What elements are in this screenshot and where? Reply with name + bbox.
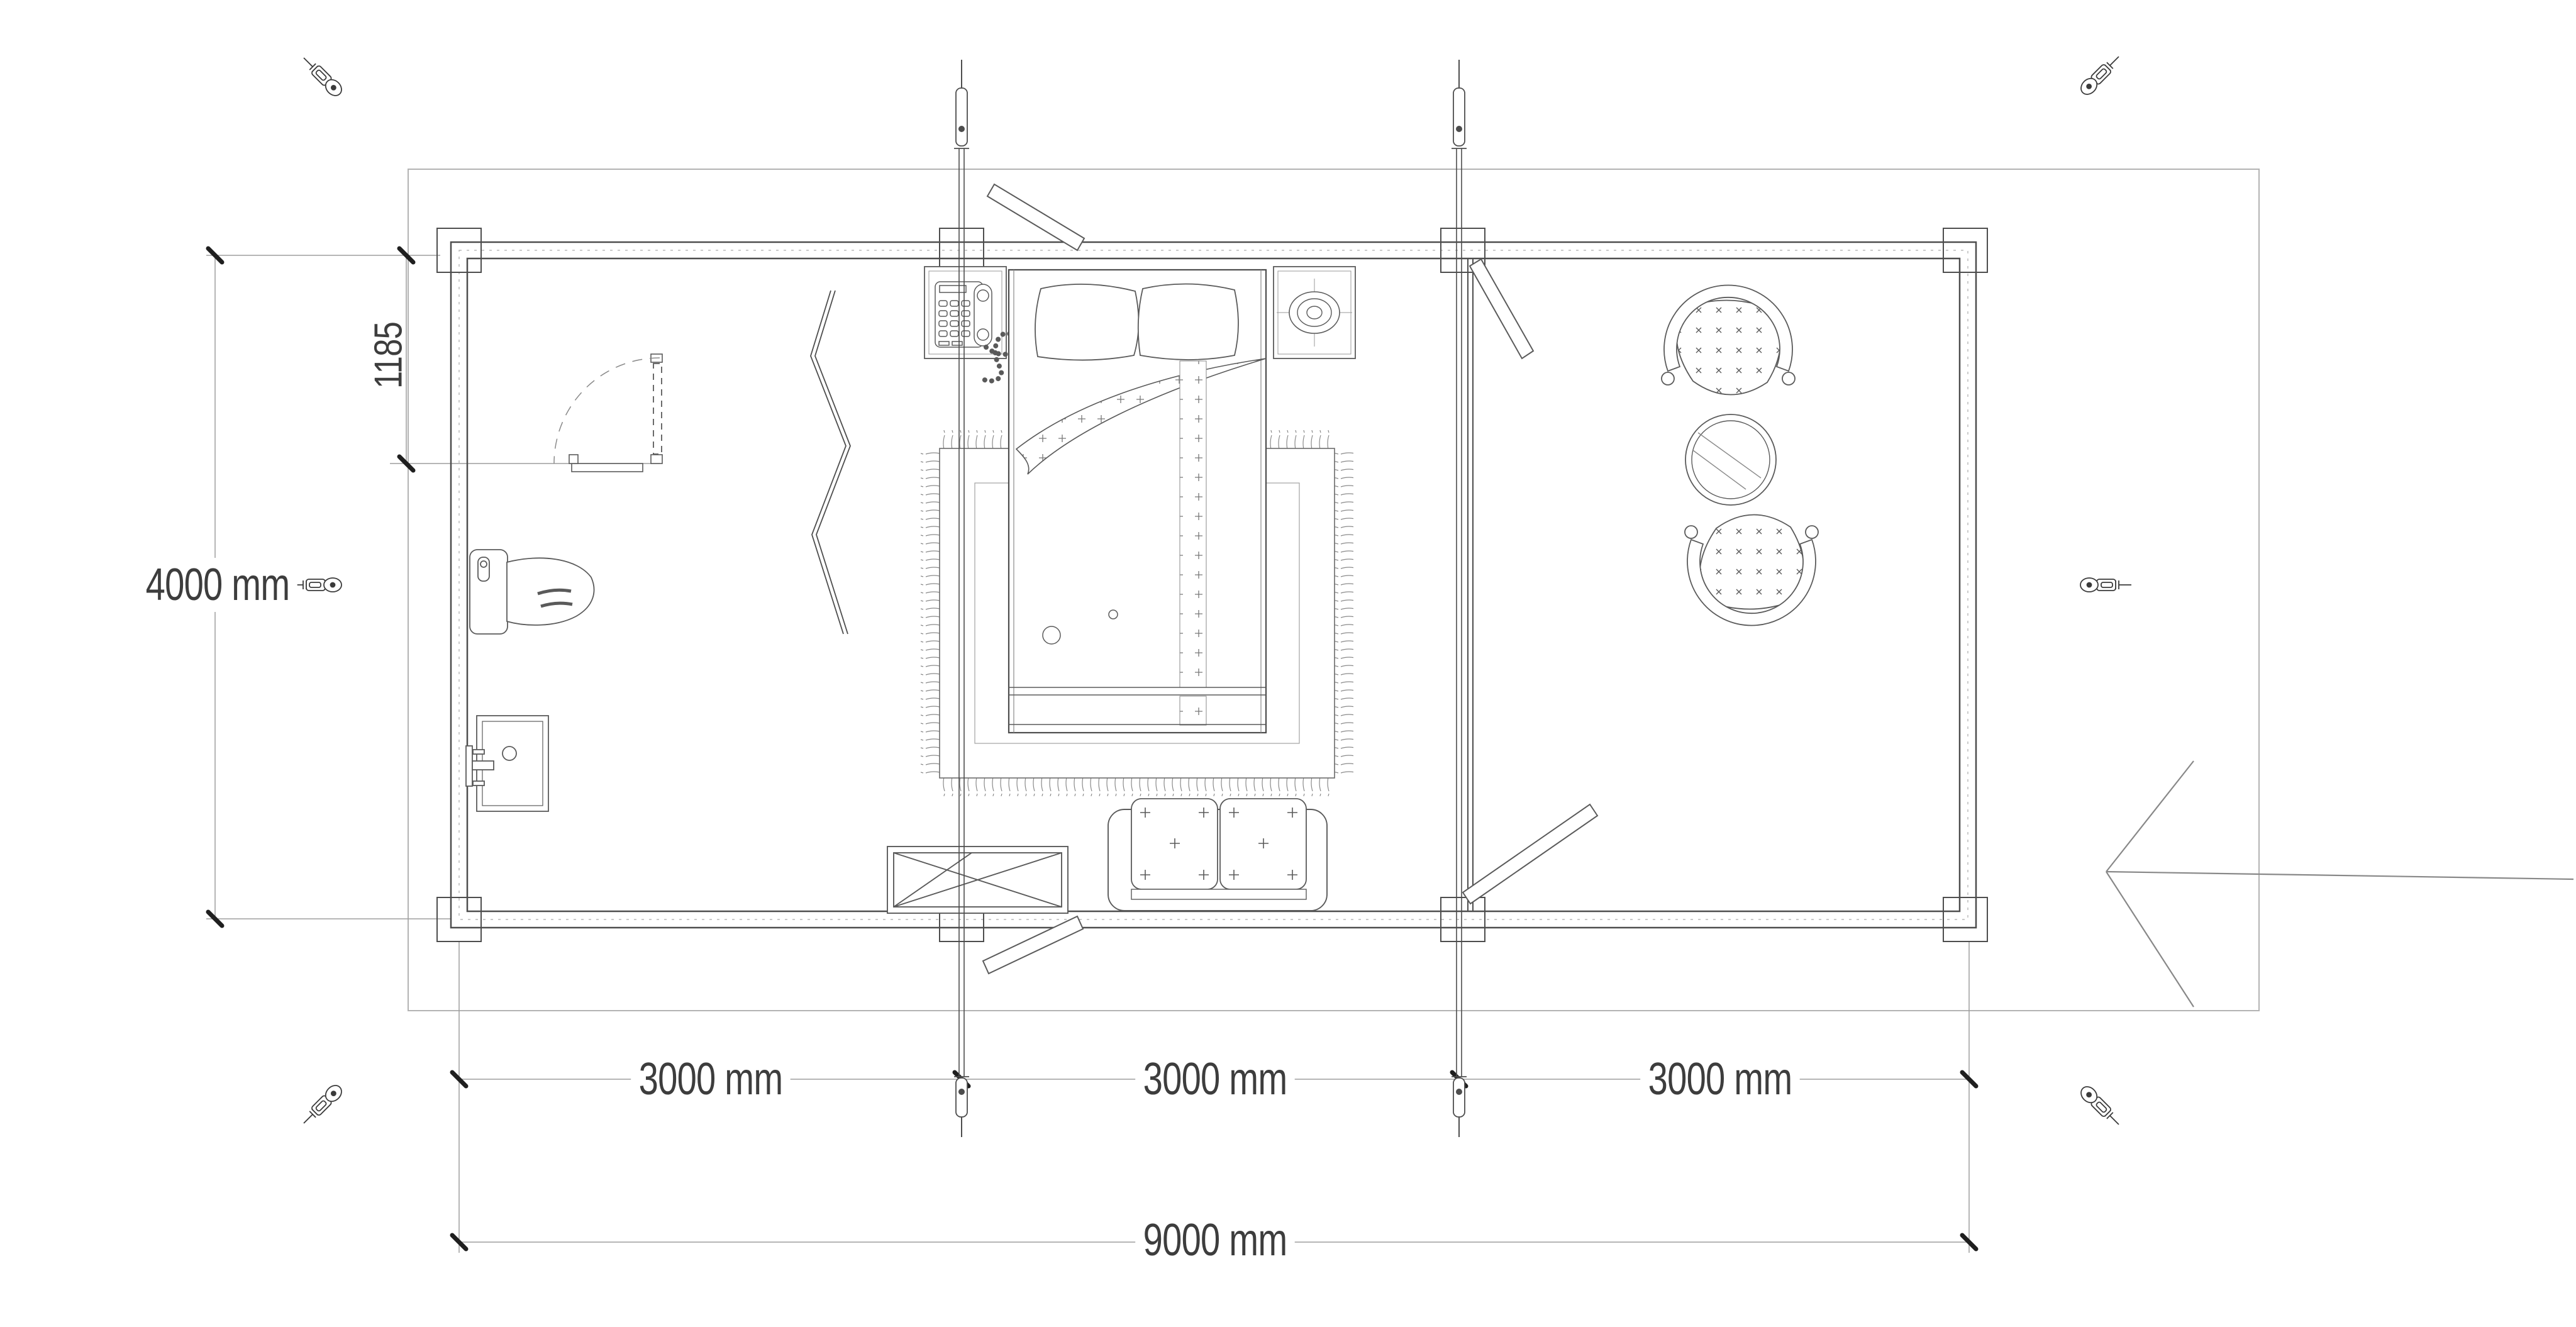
tie-rod-icon — [1452, 60, 1467, 1137]
post-bottom-left — [437, 897, 481, 941]
post-top-right — [1943, 228, 1987, 272]
door-leaf-icon — [983, 916, 1083, 974]
door-leaf-icon — [1463, 804, 1597, 904]
lamp-nightstand-icon — [1274, 267, 1355, 358]
turnbuckle-icon — [2078, 52, 2124, 97]
pillow-icon — [1138, 284, 1238, 360]
turnbuckle-icon — [291, 578, 341, 592]
folding-screen-icon — [811, 291, 850, 634]
dimension-label-bay-2: 3000 mm — [1135, 1052, 1295, 1106]
bathroom-door — [554, 354, 662, 472]
drain-icon — [502, 747, 516, 760]
seat-cushion-icon — [1699, 514, 1804, 609]
blanket-band-icon — [1180, 361, 1206, 687]
dimension-label-door-offset: 1185 — [365, 318, 413, 392]
door-leaf-icon — [1470, 259, 1533, 358]
floor-plan-canvas: 4000 mm 1185 3000 mm 3000 mm 3000 mm 900… — [0, 0, 2576, 1327]
toilet-icon — [470, 550, 594, 634]
turnbuckle-icon — [299, 1082, 345, 1128]
entrance-arrow-icon — [2106, 761, 2573, 1007]
armchair-icon — [1662, 286, 1795, 395]
round-glass-table-icon — [1685, 414, 1776, 505]
seat-cushion-icon — [1676, 300, 1780, 394]
turnbuckle-icon — [2078, 1084, 2124, 1130]
sink-icon — [466, 716, 548, 811]
dimension-label-bay-1: 3000 mm — [631, 1052, 791, 1106]
crossed-table-icon — [887, 847, 1068, 913]
door-swing-icon — [554, 358, 660, 464]
double-bed-icon — [1009, 270, 1266, 733]
dimension-label-overall-width: 9000 mm — [1135, 1213, 1295, 1267]
door-leaf-icon — [987, 184, 1084, 250]
post-bottom-mid2 — [1441, 897, 1485, 941]
post-top-mid1 — [940, 228, 984, 272]
dimension-label-depth: 4000 mm — [138, 558, 297, 612]
post-bottom-right — [1943, 897, 1987, 941]
turnbuckle-icon — [2080, 578, 2131, 592]
floor-plan-drawing — [0, 0, 2576, 1327]
dimension-label-bay-3: 3000 mm — [1640, 1052, 1800, 1106]
door-leaf-icon — [653, 364, 662, 454]
pillow-icon — [1035, 284, 1139, 360]
partition-doors — [1463, 259, 1597, 904]
sofa-icon — [1108, 799, 1327, 911]
telephone-nightstand-icon — [924, 267, 1015, 381]
partition-wall — [1468, 258, 1473, 911]
armchair-icon — [1685, 514, 1818, 625]
turnbuckle-icon — [299, 53, 345, 99]
